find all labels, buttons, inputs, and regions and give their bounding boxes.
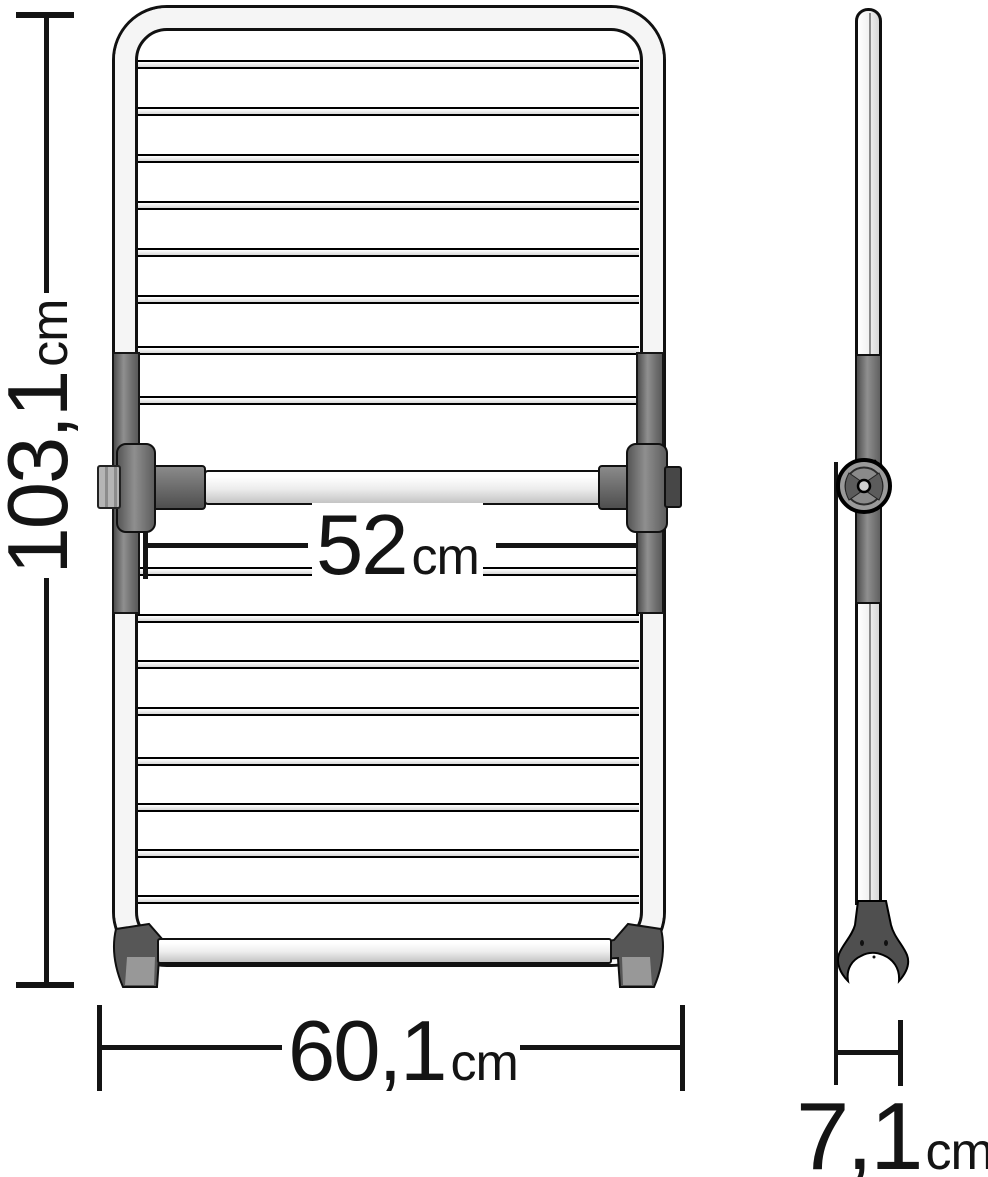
knob-dot <box>880 464 883 467</box>
knob-dot <box>885 470 888 473</box>
base-width-dim-value: 60,1 <box>288 1009 445 1094</box>
rung <box>138 895 639 904</box>
hinge-clamp-left <box>116 443 156 533</box>
rung <box>138 201 639 210</box>
side-rear-leg <box>834 462 838 1085</box>
height-dim-unit: cm <box>24 299 76 366</box>
rail-width-dim-value: 52 <box>316 503 407 588</box>
depth-dim-line <box>837 1050 903 1055</box>
rung <box>138 346 639 355</box>
depth-dim-unit: cm <box>925 1126 988 1177</box>
height-dim-cap-bottom <box>16 982 74 988</box>
rung <box>138 757 639 766</box>
base-width-dim-tick-right <box>680 1005 685 1091</box>
base-bar <box>157 938 612 964</box>
foot-right-shoe <box>622 957 652 985</box>
height-dim-value: 103,1 <box>0 372 81 575</box>
rail-width-dim-line-right <box>496 543 646 548</box>
base-width-dim-unit: cm <box>450 1037 517 1089</box>
hinge-bolt-left <box>97 465 121 509</box>
rung <box>138 849 639 858</box>
base-width-dim-line-right <box>520 1045 684 1050</box>
rung <box>138 107 639 116</box>
crossbar-collar-left <box>152 465 206 510</box>
rung <box>138 614 639 623</box>
rail-width-dim-label: 52 cm <box>312 503 483 588</box>
rung <box>138 295 639 304</box>
rung <box>138 248 639 257</box>
side-foot <box>825 895 920 990</box>
rail-width-dim-unit: cm <box>412 531 479 583</box>
knob-center <box>858 480 870 492</box>
dimension-drawing: 103,1 cm 52 cm <box>0 0 988 1177</box>
foot-left-shoe <box>125 957 155 985</box>
side-foot-shape <box>838 901 908 981</box>
rung <box>138 803 639 812</box>
side-foot-dot <box>860 940 864 946</box>
base-width-dim-line-left <box>100 1045 282 1050</box>
height-dim-line-upper <box>44 15 49 293</box>
rung <box>138 660 639 669</box>
rung <box>138 60 639 69</box>
rung <box>138 396 639 405</box>
base-width-dim-label: 60,1 cm <box>288 1009 518 1094</box>
side-foot-dot <box>873 956 876 959</box>
depth-dim-label: 7,1 cm <box>796 1089 988 1177</box>
height-dim-label: 103,1 cm <box>0 277 76 597</box>
rung <box>138 707 639 716</box>
rail-width-dim-line-left <box>146 543 308 548</box>
side-foot-dot <box>884 940 888 946</box>
height-dim-line-lower <box>44 578 49 984</box>
rung <box>138 154 639 163</box>
hinge-clamp-right <box>626 443 668 533</box>
knob-dot <box>874 460 877 463</box>
depth-dim-value: 7,1 <box>796 1089 920 1177</box>
side-hinge-knob <box>830 452 900 522</box>
hinge-bolt-right <box>664 466 682 508</box>
